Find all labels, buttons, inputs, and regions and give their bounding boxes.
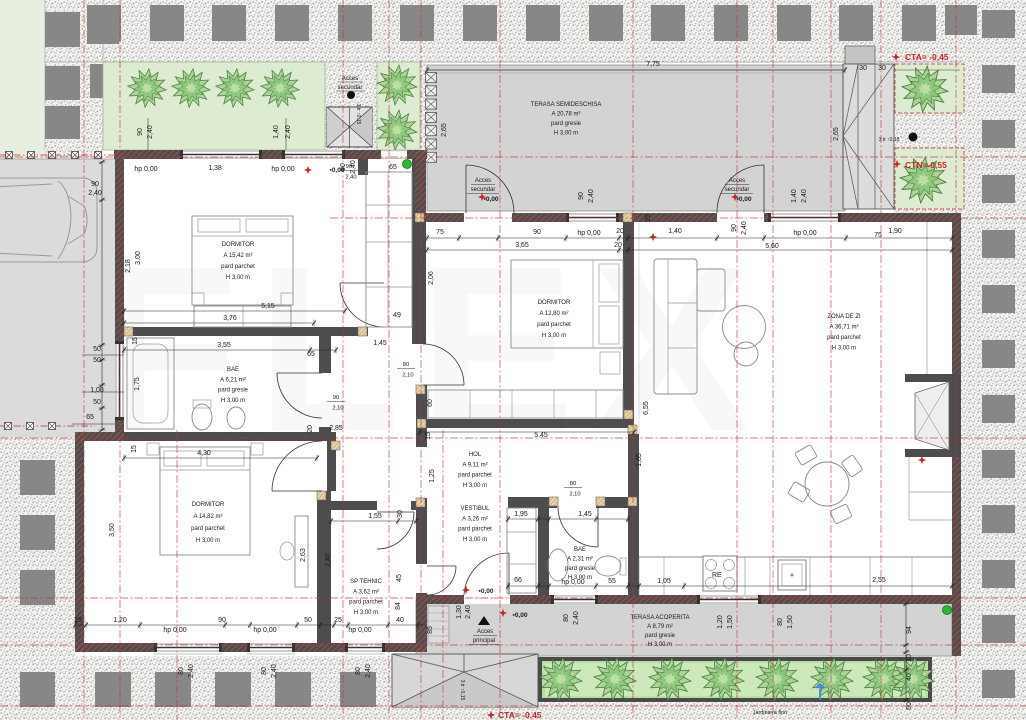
svg-text:CTA= -0,45: CTA= -0,45 xyxy=(905,52,949,62)
svg-text:4,30: 4,30 xyxy=(197,450,211,457)
svg-text:60: 60 xyxy=(427,399,434,407)
svg-text:3,00: 3,00 xyxy=(135,251,142,265)
svg-text:5,60: 5,60 xyxy=(765,243,779,250)
svg-text:80: 80 xyxy=(570,481,576,487)
svg-text:▪0,00: ▪0,00 xyxy=(484,196,499,203)
svg-text:90: 90 xyxy=(137,128,144,136)
svg-text:2,40: 2,40 xyxy=(588,189,595,203)
svg-text:30: 30 xyxy=(878,65,886,72)
svg-text:SP TEHNIC: SP TEHNIC xyxy=(350,579,382,585)
svg-text:2,40: 2,40 xyxy=(465,605,472,619)
svg-text:25: 25 xyxy=(74,617,82,624)
svg-text:2,40: 2,40 xyxy=(285,125,292,139)
svg-text:A 6,21 m²: A 6,21 m² xyxy=(220,377,246,383)
svg-text:1,40: 1,40 xyxy=(791,189,798,203)
svg-text:20: 20 xyxy=(614,242,622,249)
svg-text:80: 80 xyxy=(261,667,268,675)
svg-text:85: 85 xyxy=(427,626,434,634)
svg-text:20: 20 xyxy=(616,228,624,235)
svg-text:2,06: 2,06 xyxy=(428,271,435,285)
svg-text:90: 90 xyxy=(91,181,99,188)
svg-text:55: 55 xyxy=(608,578,616,585)
svg-text:7,75: 7,75 xyxy=(646,61,660,68)
svg-text:90: 90 xyxy=(333,395,339,401)
svg-text:1,40: 1,40 xyxy=(273,125,280,139)
svg-text:90: 90 xyxy=(340,163,347,171)
svg-text:ZONA DE ZI: ZONA DE ZI xyxy=(827,314,861,320)
svg-text:▪0,00: ▪0,00 xyxy=(737,196,752,203)
svg-text:BAE: BAE xyxy=(227,367,239,373)
svg-text:principal: principal xyxy=(473,638,495,644)
svg-text:1,45: 1,45 xyxy=(373,340,387,347)
svg-text:15: 15 xyxy=(132,337,139,345)
svg-text:5,15: 5,15 xyxy=(261,303,275,310)
svg-text:15: 15 xyxy=(131,445,138,453)
svg-text:TERASA SEMIDESCHISA: TERASA SEMIDESCHISA xyxy=(531,102,602,108)
svg-text:90: 90 xyxy=(218,617,226,624)
svg-text:A 14,82 m²: A 14,82 m² xyxy=(193,514,222,520)
svg-text:pard parchet: pard parchet xyxy=(221,264,255,270)
svg-text:1,95: 1,95 xyxy=(514,511,528,518)
svg-text:Acces: Acces xyxy=(475,178,491,184)
svg-text:2,10: 2,10 xyxy=(332,406,343,412)
svg-text:Jardiniera flori: Jardiniera flori xyxy=(753,710,788,716)
svg-text:2,40: 2,40 xyxy=(345,175,356,181)
svg-text:2,40: 2,40 xyxy=(365,664,372,678)
svg-text:1,05: 1,05 xyxy=(657,578,671,585)
svg-text:1,50: 1,50 xyxy=(787,615,794,629)
svg-text:80: 80 xyxy=(403,362,409,368)
svg-text:▪0,00: ▪0,00 xyxy=(479,588,494,595)
svg-text:TERASA ACOPERITA: TERASA ACOPERITA xyxy=(630,615,689,621)
svg-text:2,40: 2,40 xyxy=(88,190,102,197)
svg-text:3 tr ↑0,15: 3 tr ↑0,15 xyxy=(355,104,361,125)
svg-text:65: 65 xyxy=(86,414,94,421)
svg-text:2,85: 2,85 xyxy=(329,425,343,432)
svg-text:H 3,00 m: H 3,00 m xyxy=(221,398,245,404)
svg-text:40: 40 xyxy=(906,673,913,681)
svg-text:25: 25 xyxy=(334,617,342,624)
svg-text:90: 90 xyxy=(578,192,585,200)
svg-text:80: 80 xyxy=(777,618,784,626)
svg-text:2,65: 2,65 xyxy=(441,123,448,137)
svg-text:1,50: 1,50 xyxy=(727,615,734,629)
svg-text:40: 40 xyxy=(396,617,404,624)
svg-text:90: 90 xyxy=(533,229,541,236)
svg-text:Acces: Acces xyxy=(477,629,493,635)
svg-text:hp 0,00: hp 0,00 xyxy=(163,627,186,634)
svg-text:A 15,42 m²: A 15,42 m² xyxy=(223,253,252,259)
svg-text:2,40: 2,40 xyxy=(573,611,580,625)
svg-text:75: 75 xyxy=(436,229,444,236)
svg-text:45: 45 xyxy=(396,574,403,582)
svg-text:94: 94 xyxy=(906,626,913,634)
svg-text:secundar: secundar xyxy=(338,85,363,91)
svg-text:50: 50 xyxy=(93,357,101,364)
svg-text:pard parchet: pard parchet xyxy=(349,600,383,606)
svg-text:A 3,62 m²: A 3,62 m² xyxy=(353,589,379,595)
svg-text:Acces: Acces xyxy=(729,178,745,184)
svg-text:H 3,00 m: H 3,00 m xyxy=(354,610,378,616)
svg-text:Acces: Acces xyxy=(342,76,358,82)
svg-text:hp 0,00: hp 0,00 xyxy=(793,230,816,237)
svg-text:hp 0,00: hp 0,00 xyxy=(271,166,294,173)
svg-text:2,65: 2,65 xyxy=(833,127,840,141)
svg-text:2,18: 2,18 xyxy=(125,259,132,273)
svg-text:VESTIBUL: VESTIBUL xyxy=(460,506,490,512)
svg-text:pard parchet: pard parchet xyxy=(827,335,861,341)
svg-text:1,30: 1,30 xyxy=(456,605,463,619)
svg-text:10: 10 xyxy=(906,654,913,662)
svg-text:6,55: 6,55 xyxy=(643,401,650,415)
svg-text:H 3,00 m: H 3,00 m xyxy=(832,346,856,352)
svg-text:1,25: 1,25 xyxy=(429,469,436,483)
svg-text:80: 80 xyxy=(563,614,570,622)
svg-text:BAE: BAE xyxy=(574,547,586,553)
svg-text:66: 66 xyxy=(514,577,522,584)
svg-text:pard gresie: pard gresie xyxy=(218,388,249,394)
svg-text:1,75: 1,75 xyxy=(134,377,141,391)
svg-text:HOL: HOL xyxy=(469,452,482,458)
svg-text:20: 20 xyxy=(307,425,314,433)
svg-text:pard gresie: pard gresie xyxy=(565,566,596,572)
svg-text:H 3,00 m: H 3,00 m xyxy=(463,537,487,543)
svg-text:▪0,00: ▪0,00 xyxy=(513,612,528,619)
svg-text:hp 0,00: hp 0,00 xyxy=(577,230,600,237)
svg-text:A 3,26 m²: A 3,26 m² xyxy=(462,516,488,522)
svg-text:2,40: 2,40 xyxy=(350,160,357,174)
svg-text:A 36,71 m²: A 36,71 m² xyxy=(829,325,858,331)
svg-text:65: 65 xyxy=(389,164,397,171)
svg-text:DORMITOR: DORMITOR xyxy=(222,242,255,248)
svg-text:25: 25 xyxy=(645,214,652,222)
svg-text:DORMITOR: DORMITOR xyxy=(538,300,571,306)
svg-text:2,10: 2,10 xyxy=(569,492,580,498)
svg-text:1,20: 1,20 xyxy=(113,617,127,624)
svg-text:2,10: 2,10 xyxy=(402,373,413,379)
svg-text:2,63: 2,63 xyxy=(300,548,307,562)
svg-text:H 3,00 m: H 3,00 m xyxy=(463,483,487,489)
svg-text:1,38: 1,38 xyxy=(208,165,222,172)
svg-text:50: 50 xyxy=(304,617,312,624)
svg-text:hp 0,00: hp 0,00 xyxy=(561,579,584,586)
svg-text:2,40: 2,40 xyxy=(325,553,332,567)
svg-text:DORMITOR: DORMITOR xyxy=(192,502,225,508)
svg-text:CTN=-0,55: CTN=-0,55 xyxy=(905,160,947,170)
svg-text:H 3,00 m: H 3,00 m xyxy=(226,275,250,281)
svg-text:3,50: 3,50 xyxy=(109,523,116,537)
svg-text:30: 30 xyxy=(859,65,867,72)
svg-text:hp 0,00: hp 0,00 xyxy=(253,627,276,634)
svg-text:30: 30 xyxy=(397,510,404,518)
svg-text:15: 15 xyxy=(425,432,432,440)
svg-text:pard gresie: pard gresie xyxy=(551,121,582,127)
svg-text:60: 60 xyxy=(906,702,913,710)
svg-text:2,40: 2,40 xyxy=(188,664,195,678)
svg-text:49: 49 xyxy=(393,312,401,319)
svg-text:1,20: 1,20 xyxy=(717,615,724,629)
svg-text:1,90: 1,90 xyxy=(888,228,902,235)
svg-text:A 12,80 m²: A 12,80 m² xyxy=(539,311,568,317)
svg-text:2,40: 2,40 xyxy=(147,125,154,139)
svg-text:1,45: 1,45 xyxy=(578,511,592,518)
svg-text:H 3,00 m: H 3,00 m xyxy=(542,333,566,339)
svg-text:pard parchet: pard parchet xyxy=(458,473,492,479)
svg-text:3,55: 3,55 xyxy=(217,342,231,349)
svg-text:1,00: 1,00 xyxy=(90,387,104,394)
svg-text:1,85: 1,85 xyxy=(636,453,643,467)
svg-text:pard parchet: pard parchet xyxy=(191,526,225,532)
svg-text:pard gresie: pard gresie xyxy=(645,633,676,639)
svg-text:A 9,11 m²: A 9,11 m² xyxy=(462,462,487,468)
svg-text:A 20,78 m²: A 20,78 m² xyxy=(551,112,580,118)
svg-text:secundar: secundar xyxy=(471,187,496,193)
svg-text:pard parchet: pard parchet xyxy=(537,322,571,328)
svg-text:2,40: 2,40 xyxy=(801,189,808,203)
svg-text:2,55: 2,55 xyxy=(872,577,886,584)
svg-text:84: 84 xyxy=(395,602,402,610)
svg-text:3,65: 3,65 xyxy=(515,242,529,249)
svg-text:H 3,00 m: H 3,00 m xyxy=(554,131,578,137)
svg-text:75: 75 xyxy=(874,232,882,239)
svg-text:65: 65 xyxy=(307,351,315,358)
svg-text:50: 50 xyxy=(93,346,101,353)
svg-text:50: 50 xyxy=(93,399,101,406)
svg-text:RE: RE xyxy=(712,572,722,579)
svg-text:secundar: secundar xyxy=(725,187,750,193)
svg-text:3 tr ↑0,15: 3 tr ↑0,15 xyxy=(879,137,900,143)
svg-text:3 tr ↑0,15: 3 tr ↑0,15 xyxy=(459,680,465,701)
svg-text:80: 80 xyxy=(178,667,185,675)
svg-text:3,76: 3,76 xyxy=(223,315,237,322)
svg-text:A 2,31 m²: A 2,31 m² xyxy=(567,556,593,562)
svg-text:H 3,00 m: H 3,00 m xyxy=(648,642,672,648)
svg-text:2,40: 2,40 xyxy=(741,221,748,235)
svg-text:pard parchet: pard parchet xyxy=(458,527,492,533)
svg-text:1,40: 1,40 xyxy=(668,228,682,235)
svg-text:hp 0,00: hp 0,00 xyxy=(348,627,371,634)
svg-text:1,55: 1,55 xyxy=(368,513,382,520)
svg-text:5,45: 5,45 xyxy=(534,432,548,439)
svg-text:2,40: 2,40 xyxy=(271,664,278,678)
svg-text:H 3,00 m: H 3,00 m xyxy=(196,538,220,544)
svg-text:CTA= -0,45: CTA= -0,45 xyxy=(498,710,542,720)
svg-text:90: 90 xyxy=(731,224,738,232)
svg-text:hp 0,00: hp 0,00 xyxy=(134,166,157,173)
svg-text:A 8,79 m²: A 8,79 m² xyxy=(647,624,673,630)
svg-text:80: 80 xyxy=(355,667,362,675)
